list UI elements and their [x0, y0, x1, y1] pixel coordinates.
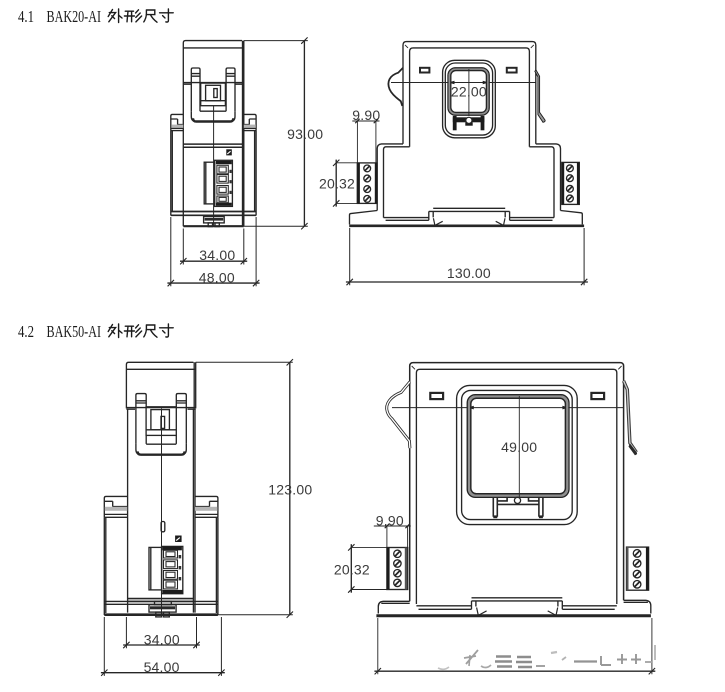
svg-text:BAK50-AI: BAK50-AI [47, 322, 102, 341]
svg-text:BAK20-AI: BAK20-AI [47, 7, 102, 26]
svg-text:20.32: 20.32 [334, 562, 370, 578]
svg-text:22.00: 22.00 [451, 83, 487, 99]
svg-text:130.00: 130.00 [447, 265, 491, 281]
svg-text:34.00: 34.00 [144, 631, 180, 647]
svg-text:54.00: 54.00 [144, 659, 180, 675]
svg-text:20.32: 20.32 [319, 175, 355, 191]
svg-text:48.00: 48.00 [199, 269, 235, 285]
svg-text:49.00: 49.00 [501, 439, 537, 455]
svg-text:4.1: 4.1 [18, 7, 34, 26]
svg-text:93.00: 93.00 [287, 126, 323, 142]
svg-text:34.00: 34.00 [199, 247, 235, 263]
svg-text:4.2: 4.2 [18, 322, 34, 341]
svg-text:123.00: 123.00 [268, 481, 312, 497]
